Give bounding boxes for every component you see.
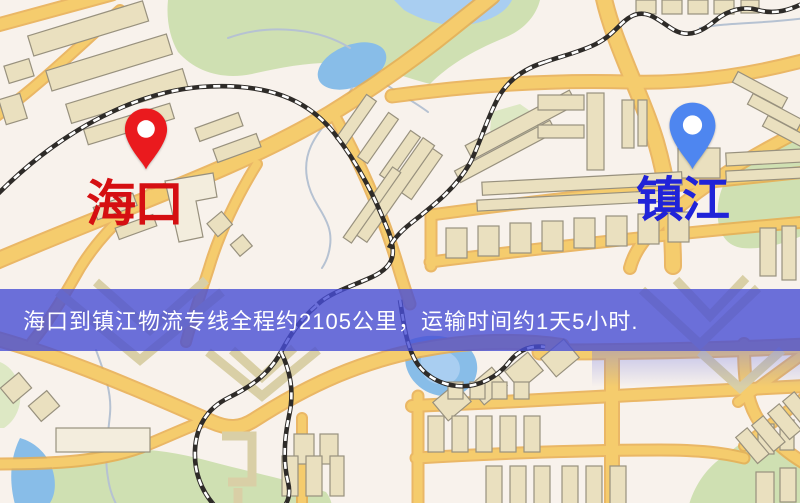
destination-city-label: 镇江 [636,177,728,225]
origin-pin[interactable] [123,106,169,173]
map-pin-icon [667,101,718,172]
route-info-text: 海口到镇江物流专线全程约2105公里，运输时间约1天5小时. [23,304,639,336]
destination-pin[interactable] [667,101,718,172]
map-canvas[interactable]: 海口 镇江 海口到镇江物流专线全程约2105公里，运输时间约1天5小时. [0,0,800,503]
map-pin-icon [123,106,169,173]
route-info-banner: 海口到镇江物流专线全程约2105公里，运输时间约1天5小时. [0,289,800,351]
map-background [0,0,800,503]
origin-city-label: 海口 [86,179,182,229]
